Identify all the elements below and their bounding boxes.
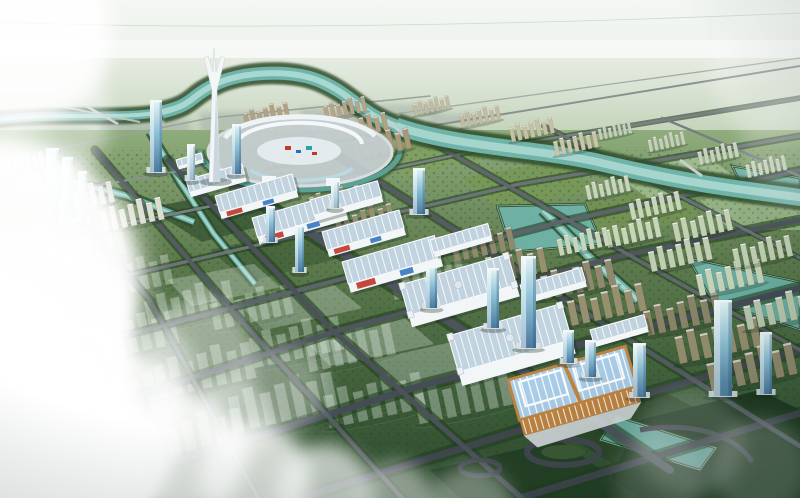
masterplan-rendering [0, 0, 800, 498]
vignette [0, 0, 800, 498]
rendering-canvas [0, 0, 800, 498]
